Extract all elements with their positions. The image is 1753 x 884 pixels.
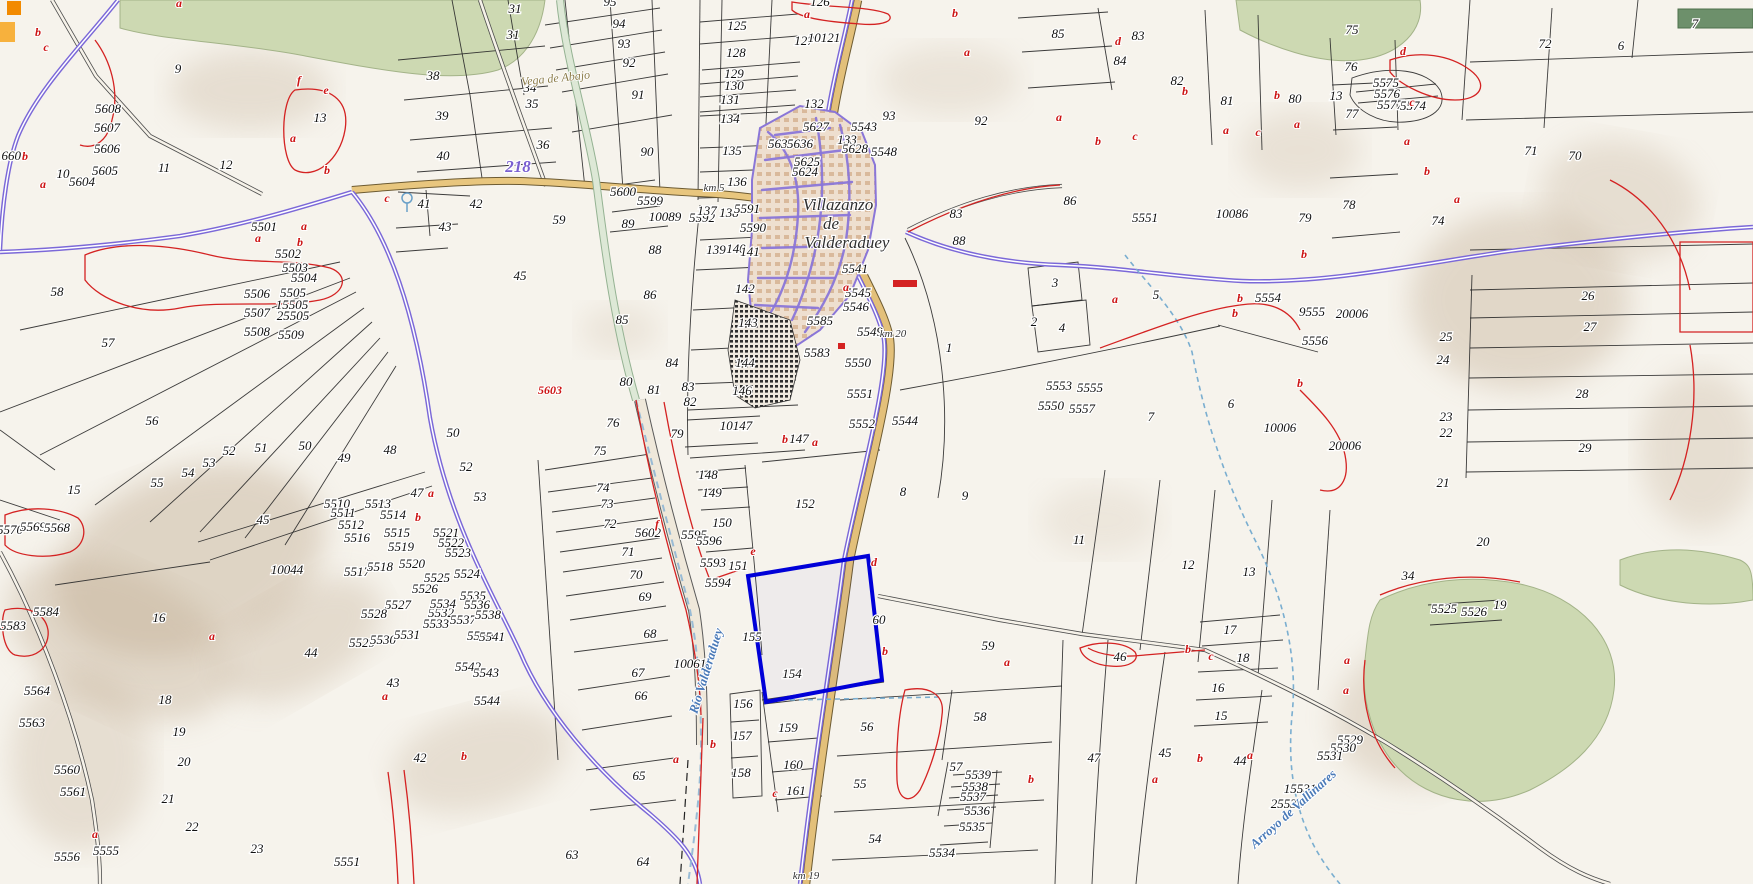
green-area bbox=[1620, 550, 1753, 604]
subparcel-letter: a bbox=[1223, 123, 1229, 137]
parcel-boundary bbox=[1018, 12, 1108, 18]
parcel-number-label: 45 bbox=[257, 512, 271, 527]
parcel-number-label: 5508 bbox=[244, 324, 271, 339]
town-name-label: de bbox=[823, 214, 840, 233]
parcel-boundary bbox=[942, 690, 952, 760]
parcel-number-label: 13 bbox=[1330, 88, 1344, 103]
parcel-number-label: 5534 bbox=[929, 845, 956, 860]
subparcel-letter: b bbox=[1297, 376, 1303, 390]
parcel-number-label: 44 bbox=[305, 645, 319, 660]
parcel-boundary bbox=[700, 36, 798, 44]
parcel-boundary bbox=[1258, 500, 1272, 676]
parcel-number-label: 5599 bbox=[637, 193, 664, 208]
parcel-number-label: 5628 bbox=[842, 141, 869, 156]
parcel-boundary bbox=[688, 405, 798, 410]
parcel-number-label: 5526 bbox=[1461, 604, 1488, 619]
parcel-number-label: 9555 bbox=[1299, 304, 1326, 319]
parcel-boundary bbox=[1466, 112, 1753, 120]
map-viewport[interactable]: 1660956085607560656051056041112135501550… bbox=[0, 0, 1753, 884]
parcel-number-label: 5534 bbox=[430, 596, 457, 611]
parcel-number-label: 59 bbox=[982, 638, 996, 653]
red-subparcel-line bbox=[908, 185, 1060, 232]
parcel-number-label: 20006 bbox=[1329, 438, 1362, 453]
hillshade-patch bbox=[1040, 485, 1160, 555]
hillshade-patch bbox=[880, 45, 1020, 115]
subparcel-letter: a bbox=[428, 486, 434, 500]
parcel-number-label: 81 bbox=[648, 382, 661, 397]
parcel-boundary bbox=[685, 443, 758, 447]
parcel-number-label: 156 bbox=[733, 696, 753, 711]
subparcel-letter: c bbox=[1409, 95, 1415, 109]
parcel-number-label: 83 bbox=[682, 379, 696, 394]
parcel-number-label: 39 bbox=[435, 108, 450, 123]
parcel-number-label: 152 bbox=[795, 496, 815, 511]
parcel-boundary bbox=[1198, 668, 1278, 672]
subparcel-letter: a bbox=[843, 280, 849, 294]
parcel-number-label: 5546 bbox=[843, 299, 870, 314]
parcel-number-label: 155 bbox=[742, 629, 762, 644]
parcel-number-label: 91 bbox=[632, 87, 645, 102]
subparcel-letter: a bbox=[1056, 110, 1062, 124]
parcel-number-label: 15 bbox=[68, 482, 82, 497]
parcel-number-label: 8 bbox=[900, 484, 907, 499]
subparcel-letter: c bbox=[772, 786, 778, 800]
parcel-number-label: 18 bbox=[159, 692, 173, 707]
parcel-number-label: 5541 bbox=[479, 629, 505, 644]
parcel-number-label: 13 bbox=[1243, 564, 1257, 579]
parcel-number-label: 49 bbox=[338, 450, 352, 465]
parcel-boundary bbox=[1544, 8, 1552, 128]
parcel-number-label: 21 bbox=[162, 791, 175, 806]
subparcel-letter: a bbox=[1404, 134, 1410, 148]
parcel-number-label: 20 bbox=[178, 754, 192, 769]
parcel-boundary bbox=[905, 238, 945, 498]
road-label: 218 bbox=[504, 157, 531, 176]
parcel-number-label: 135 bbox=[722, 143, 742, 158]
parcel-number-label: 134 bbox=[720, 111, 740, 126]
parcel-number-label: 59 bbox=[553, 212, 567, 227]
parcel-number-label: 2 bbox=[1031, 314, 1038, 329]
cadastral-map: 1660956085607560656051056041112135501550… bbox=[0, 0, 1753, 884]
parcel-number-label: 90 bbox=[641, 144, 655, 159]
parcel-number-label: 151 bbox=[728, 558, 748, 573]
subparcel-letter: a bbox=[673, 752, 679, 766]
parcel-number-label: 69 bbox=[639, 589, 653, 604]
parcel-number-label: 45 bbox=[1159, 745, 1173, 760]
parcel-number-label: 128 bbox=[726, 45, 746, 60]
subparcel-letter: a bbox=[1344, 653, 1350, 667]
parcel-number-label: 5543 bbox=[473, 665, 500, 680]
subparcel-letter: a bbox=[176, 0, 182, 10]
parcel-number-label: 5607 bbox=[94, 120, 121, 135]
parcel-number-label: 4 bbox=[1059, 320, 1066, 335]
parcel-number-label: 83 bbox=[1132, 28, 1146, 43]
subparcel-letter: b bbox=[1185, 642, 1191, 656]
parcel-number-label: 150 bbox=[712, 515, 732, 530]
parcel-number-label: 42 bbox=[414, 750, 428, 765]
parcel-number-label: 38 bbox=[426, 68, 441, 83]
subparcel-letter: a bbox=[209, 629, 215, 643]
parcel-number-label: 47 bbox=[1088, 750, 1102, 765]
parcel-number-label: 16 bbox=[1212, 680, 1226, 695]
parcel-number-label: 83 bbox=[950, 206, 964, 221]
parcel-number-label: 92 bbox=[623, 55, 637, 70]
parcel-number-label: 147 bbox=[789, 431, 809, 446]
subparcel-letter: b bbox=[35, 25, 41, 39]
parcel-number-label: 43 bbox=[439, 219, 453, 234]
fountain-icon bbox=[402, 193, 412, 203]
parcel-number-label: 5518 bbox=[367, 559, 394, 574]
track-road-casing bbox=[908, 186, 1062, 230]
parcel-boundary bbox=[578, 676, 670, 690]
parcel-number-label: 5551 bbox=[847, 386, 873, 401]
parcel-number-label: 84 bbox=[1114, 53, 1128, 68]
parcel-number-label: 5557 bbox=[1069, 401, 1096, 416]
parcel-number-label: 18 bbox=[1237, 650, 1251, 665]
parcel-number-label: 20006 bbox=[1336, 306, 1369, 321]
parcel-boundary bbox=[701, 507, 750, 510]
parcel-number-label: 63 bbox=[566, 847, 580, 862]
parcel-number-label: 28 bbox=[1576, 386, 1590, 401]
parcel-number-label: 70 bbox=[630, 567, 644, 582]
parcel-number-label: 74 bbox=[597, 480, 611, 495]
orange-marker bbox=[0, 22, 15, 42]
parcel-number-label: 157 bbox=[732, 728, 752, 743]
parcel-number-label: 5605 bbox=[92, 163, 119, 178]
parcel-number-label: 20 bbox=[1477, 534, 1491, 549]
subparcel-letter: c bbox=[1132, 129, 1138, 143]
parcel-boundary bbox=[1098, 8, 1112, 90]
parcel-boundary bbox=[700, 14, 798, 22]
subparcel-letter: b bbox=[710, 737, 716, 751]
parcel-boundary bbox=[652, 0, 660, 192]
subparcel-letter: b bbox=[1095, 134, 1101, 148]
town-name-label: Villazanzo bbox=[803, 195, 874, 214]
subparcel-letter: b bbox=[297, 235, 303, 249]
parcel-number-label: 5555 bbox=[1077, 380, 1104, 395]
parcel-number-label: 10006 bbox=[1264, 420, 1297, 435]
parcel-number-label: 86 bbox=[1064, 193, 1078, 208]
parcel-number-label: 92 bbox=[975, 113, 989, 128]
parcel-number-label: 55 bbox=[854, 776, 868, 791]
parcel-number-label: 56 bbox=[861, 719, 875, 734]
parcel-number-label: 85 bbox=[1052, 26, 1066, 41]
parcel-number-label: 5552 bbox=[849, 416, 876, 431]
parcel-number-label: 73 bbox=[601, 496, 615, 511]
parcel-boundary bbox=[1462, 0, 1470, 120]
parcel-number-label: 11 bbox=[158, 160, 170, 175]
subparcel-letter: a bbox=[255, 231, 261, 245]
parcel-number-label: 5538 bbox=[475, 607, 502, 622]
parcel-number-label: 141 bbox=[740, 244, 760, 259]
parcel-boundary bbox=[610, 226, 668, 232]
parcel-number-label: 143 bbox=[738, 315, 758, 330]
parcel-number-label: 12 bbox=[1182, 557, 1196, 572]
town-name-label: Valderaduey bbox=[805, 233, 890, 252]
parcel-number-label: 5561 bbox=[60, 784, 86, 799]
parcel-number-label: 146 bbox=[732, 383, 752, 398]
parcel-number-label: 5544 bbox=[474, 693, 501, 708]
parcel-number-label: 5537 bbox=[960, 789, 987, 804]
parcel-number-label: 71 bbox=[622, 544, 635, 559]
parcel-number-label: 131 bbox=[720, 92, 740, 107]
subparcel-letter: d bbox=[1400, 44, 1407, 58]
parcel-boundary bbox=[396, 248, 448, 252]
parcel-number-label: 29 bbox=[1579, 440, 1593, 455]
parcel-number-label: 58 bbox=[51, 284, 65, 299]
road-label: km 5 bbox=[703, 182, 725, 194]
parcel-number-label: 43 bbox=[387, 675, 401, 690]
parcel-number-label: 17 bbox=[1224, 622, 1238, 637]
parcel-number-label: 10086 bbox=[1216, 206, 1249, 221]
parcel-number-label: 84 bbox=[666, 355, 680, 370]
subparcel-letter: a bbox=[92, 827, 98, 841]
parcel-number-label: 5608 bbox=[95, 101, 122, 116]
parcel-number-label: 10089 bbox=[649, 209, 682, 224]
subparcel-letter: b bbox=[1237, 291, 1243, 305]
parcel-number-label: 36 bbox=[536, 137, 551, 152]
parcel-boundary bbox=[1318, 510, 1330, 690]
parcel-boundary bbox=[768, 738, 818, 742]
parcel-number-label: 79 bbox=[1299, 210, 1313, 225]
parcel-number-label: 9 bbox=[175, 61, 182, 76]
parcel-number-label: 5564 bbox=[24, 683, 51, 698]
parcel-number-label: 5506 bbox=[244, 286, 271, 301]
parcel-boundary bbox=[582, 716, 672, 730]
parcel-number-label: 46 bbox=[1114, 649, 1128, 664]
hillshade-patch bbox=[1240, 110, 1360, 190]
parcel-number-label: 5 bbox=[1153, 287, 1160, 302]
parcel-number-label: 25505 bbox=[277, 308, 310, 323]
parcel-number-label: 5555 bbox=[93, 843, 120, 858]
parcel-boundary bbox=[1470, 52, 1753, 62]
parcel-number-label: 16 bbox=[153, 610, 167, 625]
parcel-number-label: 5526 bbox=[412, 581, 439, 596]
parcel-number-label: 5636 bbox=[787, 136, 814, 151]
parcel-number-label: 5533 bbox=[423, 616, 450, 631]
parcel-number-label: 26 bbox=[1582, 288, 1596, 303]
parcel-number-label: 5591 bbox=[734, 201, 760, 216]
parcel-number-label: 5531 bbox=[394, 627, 420, 642]
green-area bbox=[120, 0, 545, 76]
parcel-number-label: 88 bbox=[649, 242, 663, 257]
parcel-boundary bbox=[1136, 652, 1165, 884]
green-area bbox=[1236, 0, 1421, 61]
road-label: km 20 bbox=[880, 328, 907, 340]
parcel-number-label: 5596 bbox=[696, 533, 723, 548]
parcel-boundary bbox=[1198, 490, 1215, 662]
parcel-number-label: 5531 bbox=[1317, 748, 1343, 763]
parcel-number-label: 144 bbox=[735, 355, 755, 370]
parcel-number-label: 71 bbox=[1525, 143, 1538, 158]
parcel-boundary bbox=[688, 205, 701, 455]
parcel-number-label: 5509 bbox=[278, 327, 305, 342]
parcel-number-label: 5515 bbox=[384, 525, 411, 540]
parcel-number-label: 76 bbox=[607, 415, 621, 430]
subparcel-letter: b bbox=[1232, 306, 1238, 320]
subparcel-letter: b bbox=[1424, 164, 1430, 178]
parcel-number-label: 5550 bbox=[845, 355, 872, 370]
parcel-boundary bbox=[574, 640, 668, 652]
parcel-number-label: 72 bbox=[604, 516, 618, 531]
subparcel-letter: c bbox=[43, 40, 49, 54]
parcel-number-label: 5530 bbox=[370, 632, 397, 647]
parcel-number-label: 5519 bbox=[388, 539, 415, 554]
red-marker bbox=[893, 280, 917, 287]
subparcel-letter: b bbox=[1301, 247, 1307, 261]
parcel-number-label: 5590 bbox=[740, 220, 767, 235]
parcel-number-label: 54 bbox=[182, 465, 196, 480]
parcel-boundary bbox=[1055, 640, 1063, 884]
parcel-number-label: 57 bbox=[950, 759, 964, 774]
parcel-boundary bbox=[990, 770, 997, 848]
parcel-number-label: 53 bbox=[474, 489, 488, 504]
subparcel-letter: b bbox=[461, 749, 467, 763]
parcel-number-label: 79 bbox=[671, 426, 685, 441]
parcel-number-label: 5524 bbox=[454, 566, 481, 581]
parcel-number-label: 5606 bbox=[94, 141, 121, 156]
parcel-number-label: 22 bbox=[1440, 425, 1454, 440]
parcel-number-label: 12 bbox=[220, 157, 234, 172]
parcel-number-label: 95 bbox=[604, 0, 618, 9]
subparcel-letter: a bbox=[804, 7, 810, 21]
parcel-number-label: 5594 bbox=[705, 575, 732, 590]
parcel-number-label: 7 bbox=[1148, 409, 1155, 424]
parcel-number-label: 94 bbox=[613, 16, 627, 31]
parcel-number-label: 50 bbox=[299, 438, 313, 453]
parcel-boundary bbox=[1205, 10, 1212, 145]
subparcel-letter: b bbox=[782, 432, 788, 446]
subparcel-letter: a bbox=[382, 689, 388, 703]
parcel-number-label: 44 bbox=[1234, 753, 1248, 768]
parcel-number-label: 5528 bbox=[361, 606, 388, 621]
subparcel-letter: c bbox=[1255, 125, 1261, 139]
orange-marker bbox=[7, 1, 21, 15]
parcel-number-label: 77 bbox=[1346, 106, 1360, 121]
subparcel-letter: c bbox=[384, 191, 390, 205]
red-marker bbox=[838, 343, 845, 349]
parcel-number-label: 21 bbox=[1437, 475, 1450, 490]
toponym-label: Vega de Abajo bbox=[520, 67, 590, 88]
parcel-number-label: 7 bbox=[1692, 16, 1699, 31]
parcel-number-label: 45 bbox=[514, 268, 528, 283]
subparcel-letter: a bbox=[1112, 292, 1118, 306]
parcel-boundary bbox=[1200, 615, 1280, 622]
parcel-number-label: 88 bbox=[953, 233, 967, 248]
subparcel-letter: a bbox=[1247, 748, 1253, 762]
red-subparcel-line bbox=[1100, 304, 1300, 348]
parcel-number-label: 5556 bbox=[1302, 333, 1329, 348]
parcel-boundary bbox=[417, 162, 556, 172]
parcel-number-label: 10121 bbox=[808, 30, 841, 45]
parcel-number-label: 27 bbox=[1584, 319, 1598, 334]
parcel-number-label: 5600 bbox=[610, 184, 637, 199]
selected-parcel-layer bbox=[748, 556, 882, 702]
parcel-number-label: 70 bbox=[1569, 148, 1583, 163]
parcel-number-label: 10 bbox=[57, 166, 71, 181]
road-label: km 19 bbox=[793, 870, 820, 882]
parcel-number-label: 25 bbox=[1440, 329, 1454, 344]
parcel-number-label: 81 bbox=[1221, 93, 1234, 108]
subparcel-letter: b bbox=[952, 6, 958, 20]
hillshade-patch bbox=[1640, 370, 1753, 530]
parcel-number-label: 5514 bbox=[380, 507, 407, 522]
subparcel-letter: b bbox=[324, 163, 330, 177]
parcel-number-label: 60 bbox=[873, 612, 887, 627]
parcel-number-label: 19 bbox=[173, 724, 187, 739]
parcel-number-label: 19 bbox=[1494, 597, 1508, 612]
parcel-number-label: 1660 bbox=[0, 148, 22, 163]
parcel-number-label: 5569 bbox=[20, 519, 47, 534]
parcel-number-label: 10044 bbox=[271, 562, 304, 577]
subparcel-letter: a bbox=[1294, 117, 1300, 131]
parcel-boundary bbox=[938, 762, 948, 816]
parcel-number-label: 5550 bbox=[1038, 398, 1065, 413]
subparcel-letter: e bbox=[750, 544, 756, 558]
hillshade-patch bbox=[170, 50, 330, 130]
subparcel-letter: a bbox=[964, 45, 970, 59]
parcel-number-label: 5523 bbox=[445, 545, 472, 560]
subparcel-letter: a bbox=[1152, 772, 1158, 786]
parcel-number-label: 47 bbox=[411, 485, 425, 500]
parcel-number-label: 65 bbox=[633, 768, 647, 783]
subparcel-letter: b bbox=[415, 510, 421, 524]
parcel-boundary bbox=[563, 558, 662, 572]
parcel-number-label: 160 bbox=[783, 757, 803, 772]
parcel-number-label: 132 bbox=[804, 96, 824, 111]
parcel-number-label: 80 bbox=[620, 374, 634, 389]
parcel-number-label: 5583 bbox=[0, 618, 27, 633]
parcel-number-label: 130 bbox=[724, 78, 744, 93]
parcel-boundary bbox=[698, 0, 700, 200]
parcel-number-label: 41 bbox=[418, 196, 431, 211]
parcel-number-label: 31 bbox=[508, 1, 522, 16]
parcel-number-label: 5525 bbox=[1431, 601, 1458, 616]
parcel-boundary bbox=[1022, 46, 1112, 52]
parcel-number-label: 5548 bbox=[871, 144, 898, 159]
parcel-number-label: 13 bbox=[314, 110, 328, 125]
subparcel-letter: b bbox=[1182, 84, 1188, 98]
subparcel-letter: a bbox=[812, 435, 818, 449]
parcel-number-label: 40 bbox=[437, 148, 451, 163]
parcel-number-label: 57 bbox=[102, 335, 116, 350]
red-subparcel-line bbox=[897, 689, 943, 799]
parcel-number-label: 5568 bbox=[44, 520, 71, 535]
parcel-number-label: 76 bbox=[1345, 59, 1359, 74]
parcel-number-label: 67 bbox=[632, 665, 646, 680]
parcel-boundary bbox=[0, 430, 55, 470]
parcel-number-label: 31 bbox=[506, 27, 520, 42]
parcel-number-label: 51 bbox=[255, 440, 268, 455]
parcel-boundary bbox=[1332, 232, 1400, 238]
parcel-number-label: 56 bbox=[146, 413, 160, 428]
subparcel-letter: a bbox=[1454, 192, 1460, 206]
parcel-number-label: 52 bbox=[223, 443, 237, 458]
dark-green-area bbox=[1678, 9, 1753, 28]
track-road bbox=[908, 186, 1062, 230]
parcel-number-label: 149 bbox=[702, 485, 722, 500]
selected-parcel-153[interactable] bbox=[748, 556, 882, 702]
parcel-number-label: 159 bbox=[778, 720, 798, 735]
parcel-number-label: 5536 bbox=[964, 803, 991, 818]
parcel-number-label: 5507 bbox=[244, 305, 271, 320]
parcel-number-label: 72 bbox=[1539, 36, 1553, 51]
vegetation-areas bbox=[120, 0, 1753, 801]
subparcel-letter: b bbox=[1028, 772, 1034, 786]
parcel-number-label: 22 bbox=[186, 819, 200, 834]
parcel-number-label: 139 bbox=[706, 242, 726, 257]
parcel-number-label: 23 bbox=[251, 841, 265, 856]
